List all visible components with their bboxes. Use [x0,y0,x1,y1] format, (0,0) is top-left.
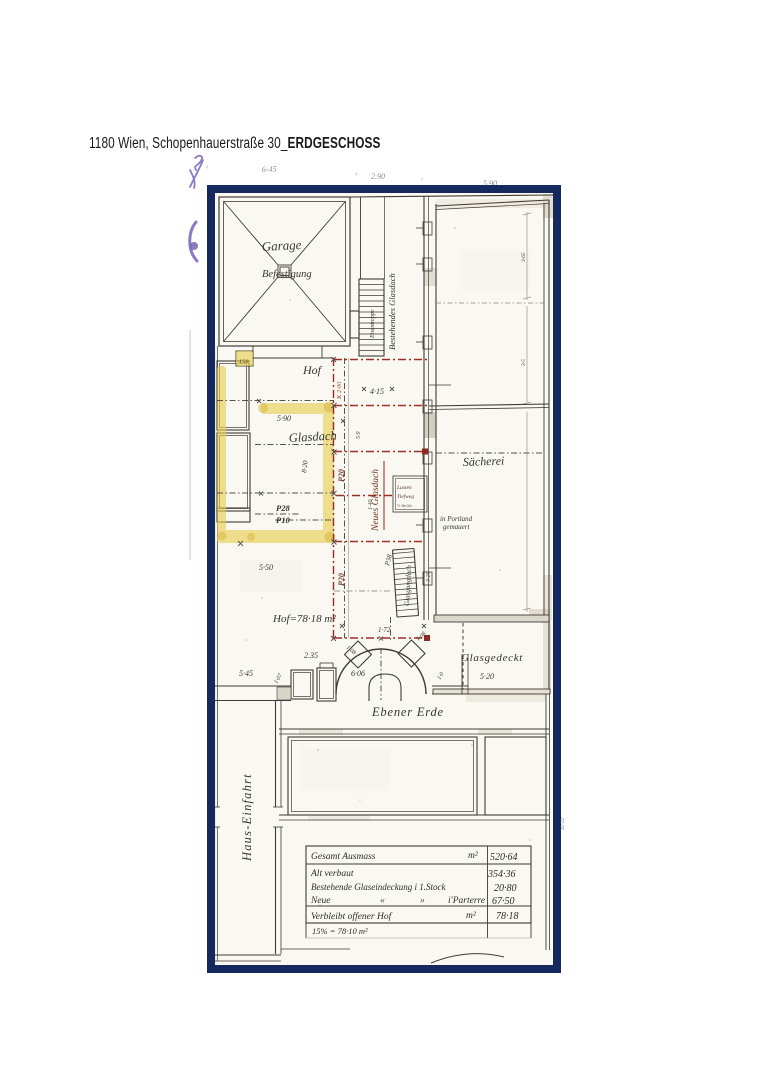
svg-text:5·45: 5·45 [239,669,253,678]
svg-text:½ lie/2a: ½ lie/2a [397,503,412,508]
svg-text:1·72: 1·72 [378,626,391,634]
svg-text:5·90: 5·90 [277,414,291,423]
svg-text:Alt verbaut: Alt verbaut [310,869,354,879]
svg-text:6-45: 6-45 [262,164,277,174]
svg-text:P10: P10 [276,515,290,525]
svg-text:3·5: 3·5 [521,359,527,367]
svg-text:Garage: Garage [261,237,302,254]
svg-text:3·65: 3·65 [521,252,527,263]
svg-text:m²: m² [466,911,476,921]
svg-text:Bestehendes Glasdach: Bestehendes Glasdach [387,273,397,350]
svg-text:in Portland: in Portland [440,515,473,523]
svg-text:5·20: 5·20 [480,672,494,681]
svg-text:1·40: 1·40 [367,500,374,511]
svg-text:2.35: 2.35 [304,651,318,660]
svg-text:P28: P28 [276,503,290,513]
svg-text:Sächerei: Sächerei [463,454,505,469]
svg-text:1'50: 1'50 [239,359,249,365]
svg-text:Lusten: Lusten [396,485,412,491]
svg-text:«: « [380,896,385,906]
svg-text:‹: ‹ [421,175,424,183]
svg-text:Tiefweg: Tiefweg [397,493,414,500]
svg-text:‹: ‹ [206,163,209,171]
svg-text:Verbleibt offener Hof: Verbleibt offener Hof [311,911,393,922]
svg-text:Gesamt Ausmass: Gesamt Ausmass [311,852,376,862]
svg-text:15% = 78·10 m²: 15% = 78·10 m² [312,926,368,936]
svg-text:K 2·00: K 2·00 [336,381,343,400]
svg-text:Glasdach: Glasdach [288,429,337,445]
svg-text:Neue: Neue [310,896,331,906]
svg-text:›: › [355,170,357,178]
svg-text:354·36: 354·36 [487,869,516,880]
svg-text:67·50: 67·50 [492,896,515,907]
svg-text:Befestigung: Befestigung [262,269,312,280]
svg-text:78·18: 78·18 [496,911,519,922]
svg-text:gemauert: gemauert [443,523,470,531]
svg-text:Hof=78·18 m²: Hof=78·18 m² [272,613,336,625]
svg-text:P20: P20 [337,469,346,482]
svg-text:5·9: 5·9 [356,432,362,440]
svg-text:Ebener Erde: Ebener Erde [371,705,444,719]
svg-text:Eisentreppe: Eisentreppe [370,309,376,339]
svg-text:4·15: 4·15 [370,387,384,396]
svg-text:»: » [420,896,425,906]
svg-text:3·20: 3·20 [426,572,432,584]
svg-text:520·64: 520·64 [490,852,518,863]
svg-text:Bestehende Glaseindeckung i 1.: Bestehende Glaseindeckung i 1.Stock [311,882,446,892]
svg-text:Hof: Hof [302,363,323,377]
svg-text:5·50: 5·50 [259,563,273,572]
svg-text:6·06: 6·06 [351,669,365,678]
svg-text:Glasgedeckt: Glasgedeckt [461,652,523,664]
svg-text:m²: m² [468,851,478,861]
svg-text:2.90: 2.90 [371,172,385,181]
svg-text:20·80: 20·80 [494,883,517,894]
svg-text:Haus-Einfahrt: Haus-Einfahrt [240,773,254,862]
svg-text:i′Parterre: i′Parterre [448,896,485,906]
svg-text:P20: P20 [337,573,346,586]
